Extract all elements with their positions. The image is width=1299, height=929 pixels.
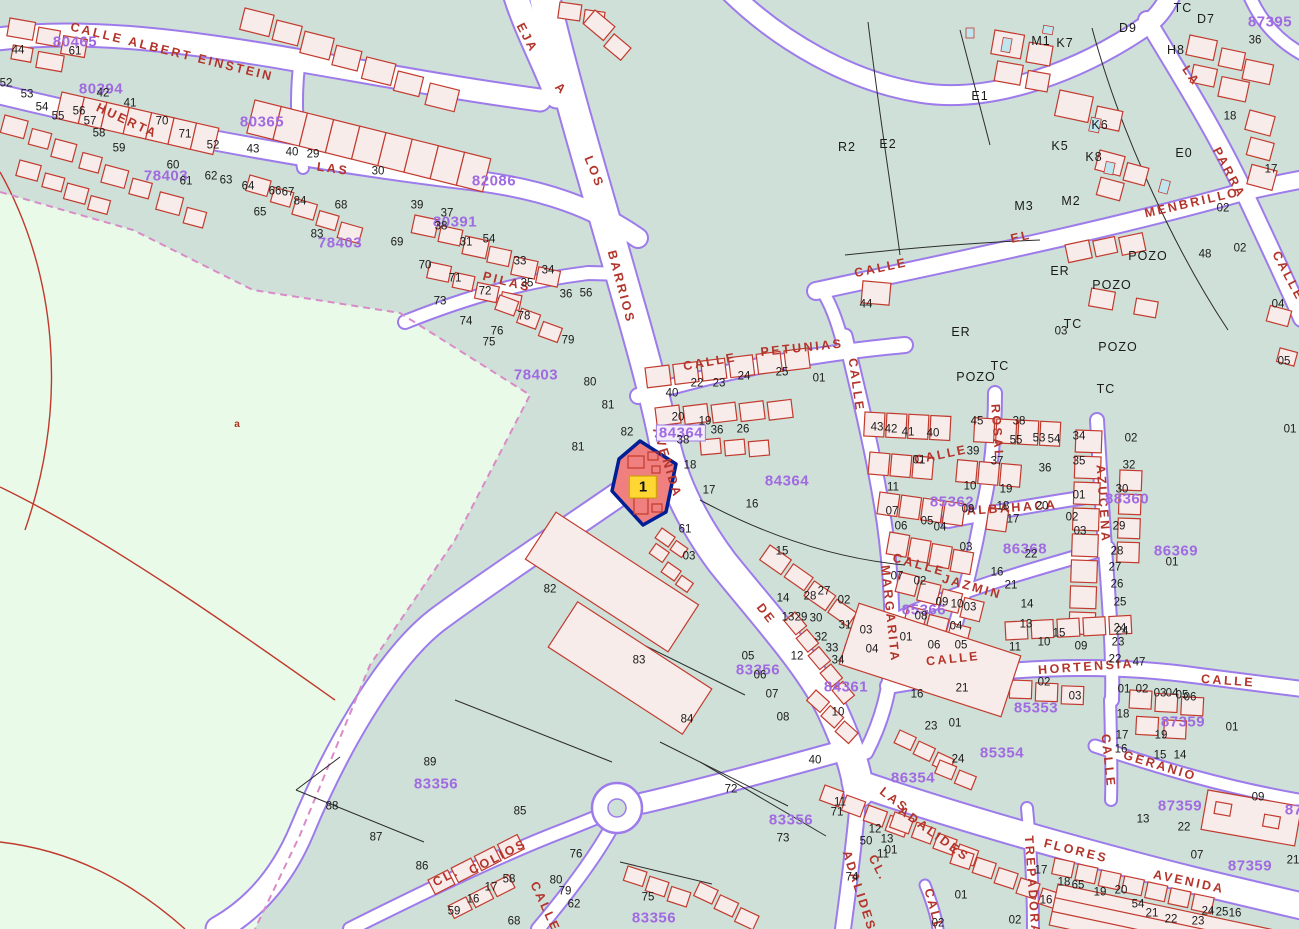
selected-parcel-marker[interactable]: 1 <box>629 476 657 499</box>
roundabout <box>592 783 642 833</box>
map-canvas <box>0 0 1299 929</box>
cadastral-map[interactable]: CALLE ALBERT EINSTEINEJAALOSBARRIOSAVENI… <box>0 0 1299 929</box>
